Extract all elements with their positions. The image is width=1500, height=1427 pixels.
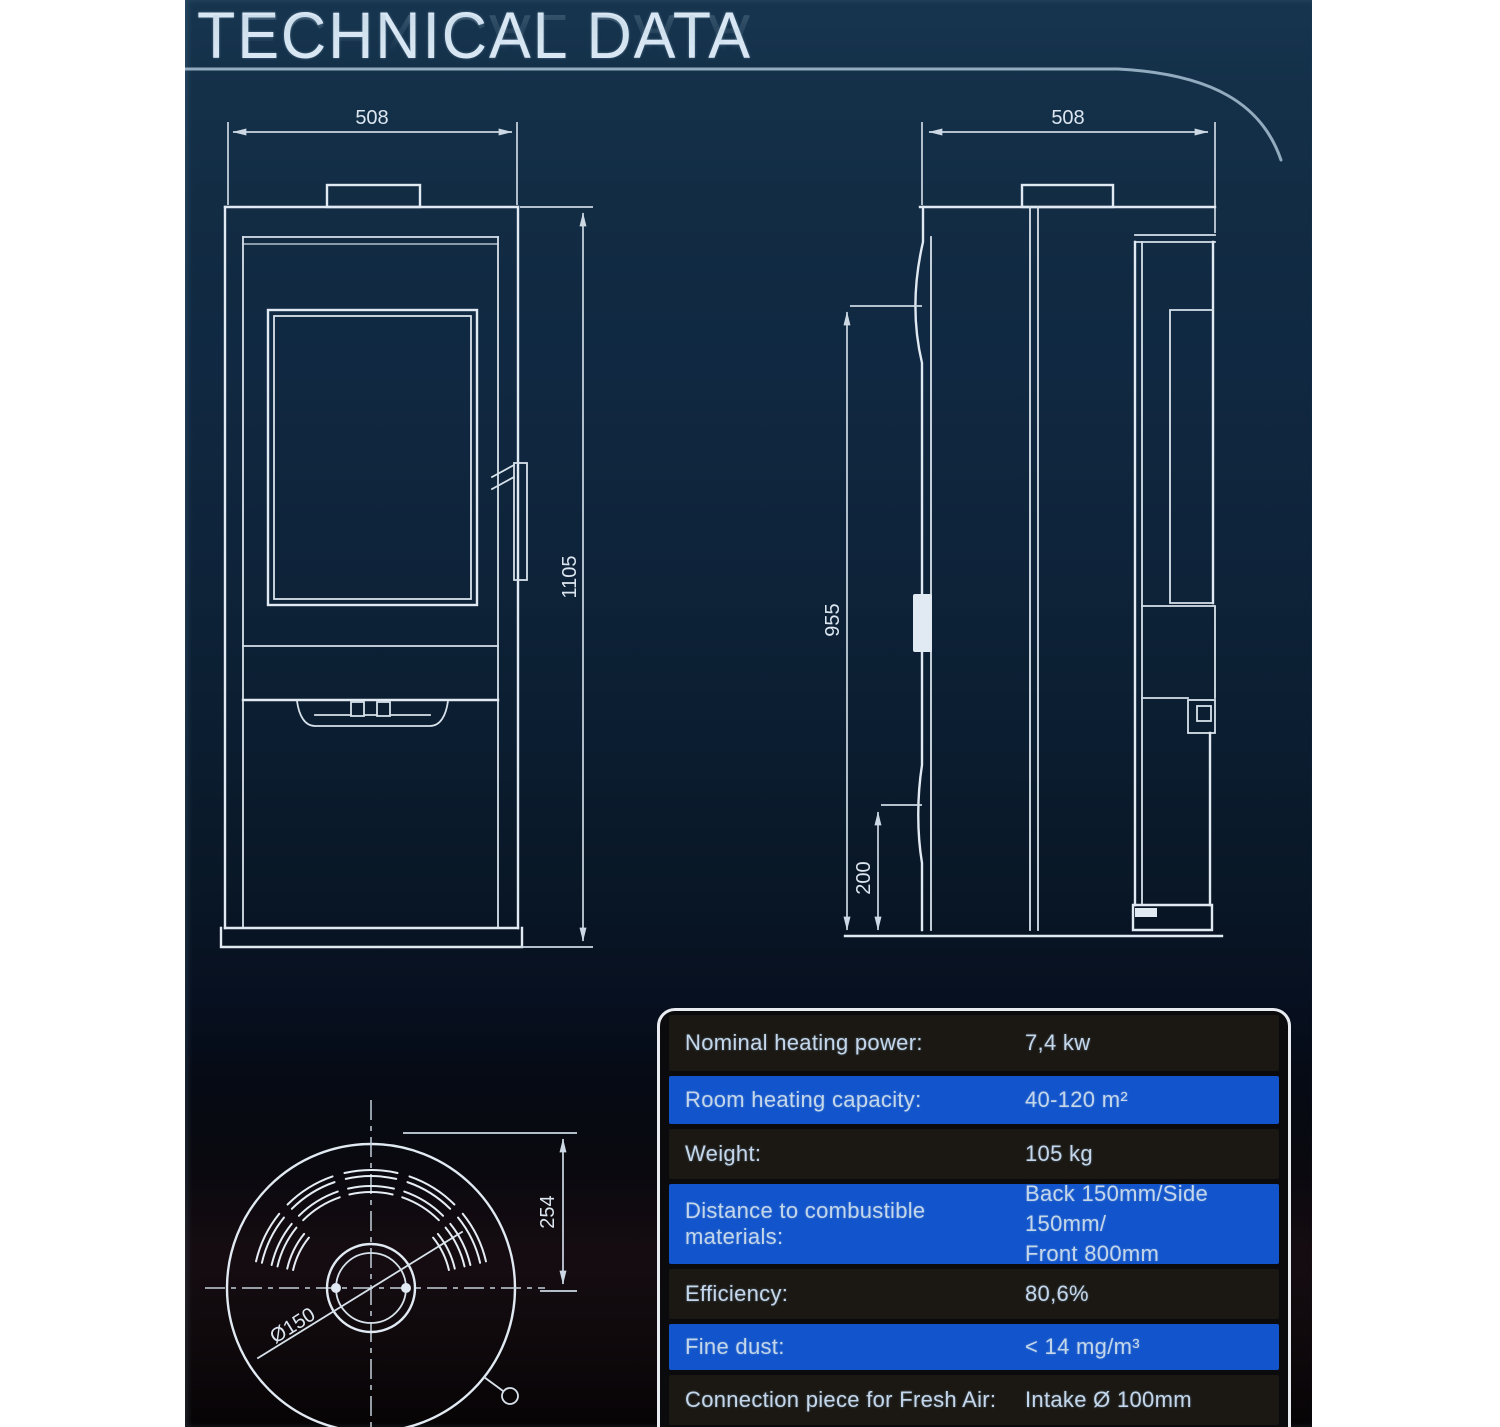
spec-label: Weight:: [669, 1141, 1025, 1167]
spec-value: < 14 mg/m³: [1025, 1332, 1279, 1362]
table-row: Nominal heating power: 7,4 kw: [669, 1015, 1279, 1071]
spec-table: Nominal heating power: 7,4 kw Room heati…: [657, 1008, 1291, 1427]
spec-value: 105 kg: [1025, 1139, 1279, 1169]
spec-value-line1: Back 150mm/Side 150mm/: [1025, 1179, 1279, 1238]
side-height-dim-label: 955: [822, 603, 844, 636]
brochure-panel: TECHNICAL DATA TECHNICAL DATA 5: [185, 0, 1312, 1427]
front-view-drawing: 508: [221, 107, 593, 947]
spec-value: 80,6%: [1025, 1279, 1279, 1309]
spec-value: Intake Ø 100mm: [1025, 1385, 1279, 1415]
spec-value-line2: Front 800mm: [1025, 1239, 1279, 1269]
spec-label: Nominal heating power:: [669, 1030, 1025, 1056]
spec-value: Back 150mm/Side 150mm/ Front 800mm: [1025, 1179, 1279, 1268]
vent-slot-group: [286, 1174, 344, 1223]
table-row: Room heating capacity: 40-120 m²: [669, 1076, 1279, 1124]
table-row: Weight: 105 kg: [669, 1129, 1279, 1179]
front-height-dim-label: 1105: [559, 555, 581, 598]
scanned-spec-sheet-page: TECHNICAL DATA TECHNICAL DATA 5: [0, 0, 1500, 1427]
table-row: Efficiency: 80,6%: [669, 1269, 1279, 1319]
front-width-dim-label: 508: [355, 107, 388, 129]
vent-slot-group: [398, 1174, 456, 1223]
flue-diameter-label: Ø150: [266, 1304, 319, 1349]
spec-value: 7,4 kw: [1025, 1028, 1279, 1058]
spec-label: Fine dust:: [669, 1334, 1025, 1360]
side-view-drawing: 508: [822, 107, 1222, 936]
spec-label: Connection piece for Fresh Air:: [669, 1387, 1025, 1413]
table-row: Connection piece for Fresh Air: Intake Ø…: [669, 1375, 1279, 1425]
spec-label: Distance to combustible materials:: [669, 1198, 1025, 1250]
vent-slot-group: [429, 1212, 488, 1277]
top-view-drawing: Ø150: [205, 1100, 577, 1427]
table-row: Distance to combustible materials: Back …: [669, 1184, 1279, 1264]
header-swoosh-line: [185, 69, 1281, 160]
side-width-dim-label: 508: [1051, 107, 1084, 129]
top-offset-dim-label: 254: [537, 1195, 559, 1228]
spec-label: Efficiency:: [669, 1281, 1025, 1307]
spec-label: Room heating capacity:: [669, 1087, 1025, 1113]
vent-slot-group: [253, 1212, 312, 1277]
spec-value: 40-120 m²: [1025, 1085, 1279, 1115]
table-row: Fine dust: < 14 mg/m³: [669, 1324, 1279, 1370]
side-base-dim-label: 200: [853, 861, 875, 894]
